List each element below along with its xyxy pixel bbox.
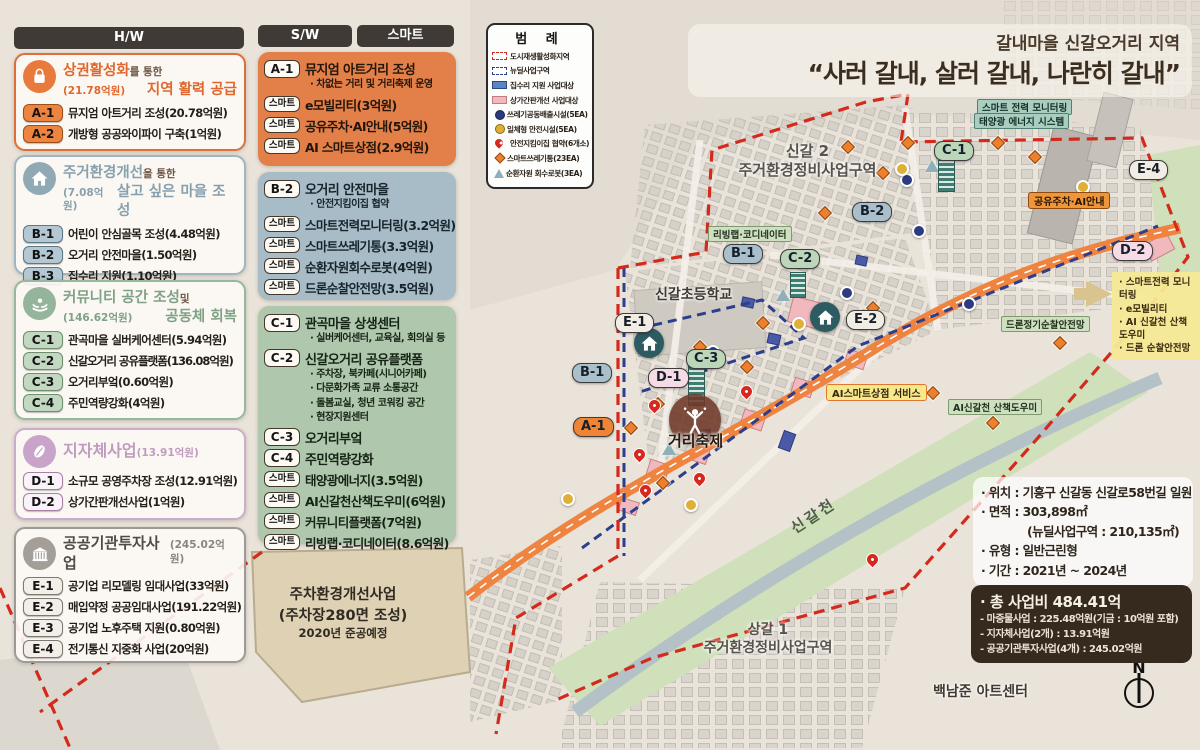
map-badge-e1: E-1 — [615, 313, 654, 333]
living-lab-label: 리빙랩·코디네이터 — [708, 226, 792, 242]
school-label: 신갈초등학교 — [655, 284, 732, 304]
row-badge: C-1 — [264, 314, 300, 332]
panel-b-title: 주거환경개선 — [63, 165, 143, 181]
hw-item: E-3공기업 노후주택 지원(0.80억원) — [23, 619, 237, 637]
sanggal1-line2: 주거환경정비사업구역 — [698, 640, 838, 658]
item-label: 전기통신 지중화 사업(20억원) — [68, 641, 209, 657]
parking-line1: 주차환경개선사업 — [258, 583, 428, 604]
poster: E-1 C-3 D-1 B-1 A-1 B-1 C-2 B-2 C-1 E-2 … — [0, 0, 1200, 750]
row-badge: A-1 — [264, 60, 300, 78]
red-dashed-area-icon — [492, 52, 507, 60]
item-badge: E-2 — [23, 598, 63, 616]
item-badge: C-4 — [23, 394, 63, 412]
row-label: 오거리부엌 — [305, 428, 362, 447]
item-label: 오거리부엌(0.60억원) — [68, 374, 173, 390]
item-label: 오거리 안전마을(1.50억원) — [68, 247, 197, 263]
item-badge: D-2 — [23, 493, 63, 511]
row-label: AI 스마트상점(2.9억원) — [305, 137, 429, 156]
hw-panel-commercial: 상권활성화를 통한 (21.78억원)지역 활력 공급 A-1뮤지엄 아트거리 … — [14, 53, 246, 151]
row-badge: 스마트 — [264, 534, 300, 550]
bean-icon — [23, 435, 56, 468]
row-label: 스마트전력모니터링(3.2억원) — [305, 215, 455, 234]
hw-panel-public-investment: 공공기관투자사업 (245.02억원) E-1공기업 리모델링 임대사업(33억… — [14, 527, 246, 663]
row-badge: 스마트 — [264, 258, 300, 274]
legend-label: 도시재생활성화지역 — [510, 51, 569, 62]
info-period: · 기간 : 2021년 ~ 2024년 — [981, 561, 1185, 580]
row-label: 순환자원회수로봇(4억원) — [305, 257, 432, 276]
smart-list-item: · AI 신갈천 산책도우미 — [1119, 316, 1193, 343]
sw-row: 스마트스마트전력모니터링(3.2억원) — [264, 215, 450, 234]
budget-title: · 총 사업비 484.41억 — [980, 591, 1183, 612]
map-badge-a1: A-1 — [573, 417, 614, 437]
art-center-label: 백남준 아트센터 — [933, 681, 1028, 701]
row-label: 주민역량강화 — [305, 449, 373, 468]
legend-label: 뉴딜사업구역 — [510, 65, 550, 76]
legend-item: 안전지킴이집 협약(6개소) — [492, 137, 588, 152]
singal2-line1: 신갈 2 — [735, 142, 880, 161]
panel-c-budget: (146.62억원) — [63, 312, 132, 326]
item-label: 관곡마을 실버케어센터(5.94억원) — [68, 332, 226, 348]
row-badge: 스마트 — [264, 96, 300, 112]
row-label: 신갈오거리 공유플랫폼 — [305, 349, 423, 368]
budget-line: - 지자체사업(2개) : 13.91억원 — [980, 627, 1183, 642]
navy-circle-icon — [495, 110, 505, 120]
hw-item: B-2오거리 안전마을(1.50억원) — [23, 246, 237, 264]
solar-system-label: 태양광 에너지 시스템 — [974, 113, 1069, 129]
map-badge-b1-north: B-1 — [723, 244, 763, 264]
sw-row: 스마트리빙랩·코디네이터(8.6억원) — [264, 533, 450, 552]
legend-item: 일체형 안전시설(5EA) — [492, 122, 588, 137]
legend-label: 쓰레기공동배출시설(5EA) — [507, 109, 588, 120]
hw-item: C-1관곡마을 실버케어센터(5.94억원) — [23, 331, 237, 349]
sw-row: 스마트AI신갈천산책도우미(6억원) — [264, 491, 450, 510]
panel-b-subtitle: 살고 싶은 마을 조성 — [117, 183, 237, 221]
column-header-sw: S/W — [258, 25, 352, 47]
panel-a-budget: (21.78억원) — [63, 85, 125, 99]
row-label: 커뮤니티플랫폼(7억원) — [305, 512, 421, 531]
hw-item: C-2신갈오거리 공유플랫폼(136.08억원) — [23, 352, 237, 370]
legend-label: 순환자원 회수로봇(3EA) — [506, 168, 582, 179]
pink-rect-icon — [492, 96, 507, 104]
item-label: 공기업 리모델링 임대사업(33억원) — [68, 578, 229, 594]
row-badge: B-2 — [264, 180, 300, 198]
hw-panel-residential: 주거환경개선을 통한 (7.08억원)살고 싶은 마을 조성 B-1어린이 안심… — [14, 155, 246, 275]
festival-label: 거리축제 — [668, 430, 723, 451]
row-label: 스마트쓰레기통(3.3억원) — [305, 236, 434, 255]
item-badge: E-4 — [23, 640, 63, 658]
item-badge: B-1 — [23, 225, 63, 243]
orange-diamond-icon — [494, 153, 505, 164]
hw-item: B-1어린이 안심골목 조성(4.48억원) — [23, 225, 237, 243]
hw-item: C-3오거리부엌(0.60억원) — [23, 373, 237, 391]
smart-feature-list: · 스마트전력 모니터링 · e모빌리티 · AI 신갈천 산책도우미 · 드론… — [1112, 272, 1200, 360]
row-label: 공유주차·AI안내(5억원) — [305, 116, 428, 135]
item-badge: A-2 — [23, 125, 63, 143]
sw-row: C-3오거리부엌 — [264, 428, 450, 447]
row-badge: 스마트 — [264, 237, 300, 253]
hw-item: E-2매입약정 공공임대사업(191.22억원) — [23, 598, 237, 616]
row-label: 리빙랩·코디네이터(8.6억원) — [305, 533, 449, 552]
sw-panel-b: B-2오거리 안전마을 · 안전지킴이집 협약 스마트스마트전력모니터링(3.2… — [258, 172, 456, 300]
sanggal1-area-label: 상갈 1 주거환경정비사업구역 — [698, 622, 838, 657]
hw-item: C-4주민역량강화(4억원) — [23, 394, 237, 412]
legend-item: 상가간판개선 사업대상 — [492, 93, 588, 108]
legend-label: 안전지킴이집 협약(6개소) — [510, 138, 589, 149]
panel-a-title: 상권활성화 — [63, 63, 130, 79]
map-badge-c1: C-1 — [934, 141, 974, 161]
teal-triangle-icon — [494, 169, 504, 178]
hw-item: E-4전기통신 지중화 사업(20억원) — [23, 640, 237, 658]
panel-c-subtitle: 공동체 회복 — [165, 308, 237, 327]
yellow-circle-icon — [495, 124, 505, 134]
item-badge: B-2 — [23, 246, 63, 264]
row-label: 오거리 안전마을 — [305, 179, 388, 198]
row-badge: 스마트 — [264, 513, 300, 529]
map-badge-d1: D-1 — [648, 368, 689, 388]
column-header-hw: H/W — [14, 27, 244, 49]
sw-panel-a: A-1뮤지엄 아트거리 조성 · 차없는 거리 및 거리축제 운영 스마트e모빌… — [258, 52, 456, 166]
row-subnote: · 차없는 거리 및 거리축제 운영 — [310, 78, 450, 93]
singal2-area-label: 신갈 2 주거환경정비사업구역 — [735, 142, 880, 180]
drone-label: 드론정기순찰안전망 — [1001, 316, 1090, 332]
sw-row: 스마트스마트쓰레기통(3.3억원) — [264, 236, 450, 255]
sw-panel-c: C-1관곡마을 상생센터 · 실버케어센터, 교육실, 회의실 등 C-2신갈오… — [258, 306, 456, 544]
row-label: 드론순찰안전망(3.5억원) — [305, 278, 434, 297]
map-badge-c2: C-2 — [780, 249, 820, 269]
legend-label: 상가간판개선 사업대상 — [510, 95, 578, 106]
legend-item: 순환자원 회수로봇(3EA) — [492, 166, 588, 181]
row-badge: 스마트 — [264, 492, 300, 508]
item-label: 개방형 공공와이파이 구축(1억원) — [68, 126, 221, 142]
red-pin-icon — [492, 138, 507, 150]
info-area-newdeal: (뉴딜사업구역 : 210,135㎡) — [981, 522, 1185, 541]
legend-label: 스마트쓰레기통(23EA) — [507, 153, 579, 164]
panel-e-title: 공공기관투자사업 — [63, 534, 170, 573]
row-badge: 스마트 — [264, 117, 300, 133]
title-block: 갈내마을 신갈오거리 지역 “사러 갈내, 살러 갈내, 나란히 갈내” — [688, 24, 1192, 97]
budget-line: - 공공기관투자사업(4개) : 245.02억원 — [980, 642, 1183, 657]
row-badge: C-4 — [264, 449, 300, 467]
row-badge: 스마트 — [264, 471, 300, 487]
smart-list-arrow-icon — [1086, 281, 1112, 307]
panel-a-subtitle: 지역 활력 공급 — [147, 81, 237, 100]
row-badge: 스마트 — [264, 138, 300, 154]
site-info-box: · 위치 : 기흥구 신갈동 신갈로58번길 일원 · 면적 : 303,898… — [973, 477, 1193, 586]
panel-e-budget: (245.02억원) — [170, 539, 237, 566]
sanggal1-line1: 상갈 1 — [698, 622, 838, 640]
shopping-bag-icon — [23, 60, 56, 93]
row-subnote: · 주차장, 북카페(시니어카페) — [310, 368, 450, 383]
row-label: 관곡마을 상생센터 — [305, 313, 400, 332]
map-badge-e2: E-2 — [846, 310, 885, 330]
map-badge-d2: D-2 — [1112, 241, 1153, 261]
panel-c-title: 커뮤니티 공간 조성 — [63, 290, 180, 306]
sw-row: C-1관곡마을 상생센터 — [264, 313, 450, 332]
item-badge: C-3 — [23, 373, 63, 391]
smart-list-item: · 스마트전력 모니터링 — [1119, 276, 1193, 303]
panel-b-suffix: 을 통한 — [143, 168, 176, 180]
row-label: 태양광에너지(3.5억원) — [305, 470, 423, 489]
map-badge-c3: C-3 — [686, 349, 726, 369]
map-badge-b2: B-2 — [852, 202, 892, 222]
legend-label: 일체형 안전시설(5EA) — [507, 124, 577, 135]
info-area: · 면적 : 303,898㎡ — [981, 502, 1185, 521]
row-label: AI신갈천산책도우미(6억원) — [305, 491, 445, 510]
legend-label: 집수리 지원 사업대상 — [510, 80, 574, 91]
item-label: 뮤지엄 아트거리 조성(20.78억원) — [68, 105, 227, 121]
info-location: · 위치 : 기흥구 신갈동 신갈로58번길 일원 — [981, 483, 1185, 502]
shared-parking-label: 공유주차·AI안내 — [1028, 192, 1110, 209]
smart-list-item: · 드론 순찰안전망 — [1119, 342, 1193, 355]
sw-row: 스마트드론순찰안전망(3.5억원) — [264, 278, 450, 297]
hw-panel-community: 커뮤니티 공간 조성및 (146.62억원)공동체 회복 C-1관곡마을 실버케… — [14, 280, 246, 420]
parking-line2: (주차장280면 조성) — [258, 604, 428, 625]
panel-d-budget: (13.91억원) — [137, 447, 199, 461]
legend-item: 뉴딜사업구역 — [492, 64, 588, 79]
house-icon — [23, 162, 56, 195]
map-badge-e4: E-4 — [1129, 160, 1168, 180]
hw-item: A-1뮤지엄 아트거리 조성(20.78억원) — [23, 104, 237, 122]
ai-store-label: AI스마트상점 서비스 — [826, 384, 927, 401]
hw-panel-municipal: 지자체사업 (13.91억원) D-1소규모 공영주차장 조성(12.91억원)… — [14, 428, 246, 520]
budget-line: - 마중물사업 : 225.48억원(기금 : 10억원 포함) — [980, 612, 1183, 627]
singal2-line2: 주거환경정비사업구역 — [735, 161, 880, 180]
sw-row: 스마트공유주차·AI안내(5억원) — [264, 116, 450, 135]
hw-item: D-2상가간판개선사업(1억원) — [23, 493, 237, 511]
legend-item: 스마트쓰레기통(23EA) — [492, 151, 588, 166]
house-icon — [810, 302, 840, 332]
total-budget-box: · 총 사업비 484.41억 - 마중물사업 : 225.48억원(기금 : … — [971, 585, 1192, 663]
public-building-icon — [23, 537, 56, 570]
parking-project-label: 주차환경개선사업 (주차장280면 조성) 2020년 준공예정 — [258, 583, 428, 641]
smart-list-item: · e모빌리티 — [1119, 303, 1193, 316]
row-badge: 스마트 — [264, 279, 300, 295]
item-label: 소규모 공영주차장 조성(12.91억원) — [68, 473, 237, 489]
sw-row: 스마트커뮤니티플랫폼(7억원) — [264, 512, 450, 531]
row-badge: C-2 — [264, 349, 300, 367]
row-subnote: · 실버케어센터, 교육실, 회의실 등 — [310, 332, 450, 347]
north-compass-icon: N — [1122, 660, 1156, 708]
item-label: 매입약정 공공임대사업(191.22억원) — [68, 599, 241, 615]
item-badge: A-1 — [23, 104, 63, 122]
item-badge: E-1 — [23, 577, 63, 595]
item-label: 어린이 안심골목 조성(4.48억원) — [68, 226, 220, 242]
parking-line3: 2020년 준공예정 — [258, 625, 428, 641]
item-badge: D-1 — [23, 472, 63, 490]
row-subnote: · 안전지킴이집 협약 — [310, 198, 450, 213]
legend: 범 례 도시재생활성화지역 뉴딜사업구역 집수리 지원 사업대상 상가간판개선 … — [486, 23, 594, 189]
item-label: 주민역량강화(4억원) — [68, 395, 165, 411]
community-hands-icon — [23, 287, 56, 320]
title-slogan: “사러 갈내, 살러 갈내, 나란히 갈내” — [700, 54, 1180, 90]
ai-walk-label: AI신갈천 산책도우미 — [948, 399, 1042, 415]
panel-d-title: 지자체사업 — [63, 441, 137, 462]
sw-row: A-1뮤지엄 아트거리 조성 — [264, 59, 450, 78]
legend-title: 범 례 — [492, 28, 588, 47]
item-badge: C-2 — [23, 352, 63, 370]
item-badge: E-3 — [23, 619, 63, 637]
blue-rect-icon — [492, 81, 507, 89]
sw-row: C-4주민역량강화 — [264, 449, 450, 468]
sw-row: C-2신갈오거리 공유플랫폼 — [264, 349, 450, 368]
row-subnote: · 다문화가족 교류 소통공간 — [310, 382, 450, 397]
map-badge-b1: B-1 — [572, 363, 612, 383]
panel-b-budget: (7.08억원) — [63, 187, 117, 214]
item-badge: C-1 — [23, 331, 63, 349]
title-region: 갈내마을 신갈오거리 지역 — [700, 29, 1180, 54]
item-label: 공기업 노후주택 지원(0.80억원) — [68, 620, 220, 636]
legend-item: 쓰레기공동배출시설(5EA) — [492, 107, 588, 122]
hw-item: A-2개방형 공공와이파이 구축(1억원) — [23, 125, 237, 143]
row-label: e모빌리티(3억원) — [305, 95, 397, 114]
item-label: 상가간판개선사업(1억원) — [68, 494, 185, 510]
hw-item: D-1소규모 공영주차장 조성(12.91억원) — [23, 472, 237, 490]
sw-row: 스마트AI 스마트상점(2.9억원) — [264, 137, 450, 156]
legend-item: 도시재생활성화지역 — [492, 49, 588, 64]
panel-a-suffix: 를 통한 — [130, 66, 163, 78]
sw-row: 스마트e모빌리티(3억원) — [264, 95, 450, 114]
row-label: 뮤지엄 아트거리 조성 — [305, 59, 415, 78]
item-label: 신갈오거리 공유플랫폼(136.08억원) — [68, 353, 233, 369]
row-badge: C-3 — [264, 428, 300, 446]
sw-row: 스마트태양광에너지(3.5억원) — [264, 470, 450, 489]
sw-row: B-2오거리 안전마을 — [264, 179, 450, 198]
info-type: · 유형 : 일반근린형 — [981, 541, 1185, 560]
row-subnote: · 돌봄교실, 청년 코워킹 공간 — [310, 397, 450, 412]
row-badge: 스마트 — [264, 216, 300, 232]
sw-row: 스마트순환자원회수로봇(4억원) — [264, 257, 450, 276]
column-header-smart: 스마트 — [357, 25, 454, 47]
blue-dashed-area-icon — [492, 67, 507, 75]
legend-item: 집수리 지원 사업대상 — [492, 78, 588, 93]
panel-c-suffix: 및 — [180, 293, 190, 305]
row-subnote: · 현장지원센터 — [310, 411, 450, 426]
hw-item: E-1공기업 리모델링 임대사업(33억원) — [23, 577, 237, 595]
